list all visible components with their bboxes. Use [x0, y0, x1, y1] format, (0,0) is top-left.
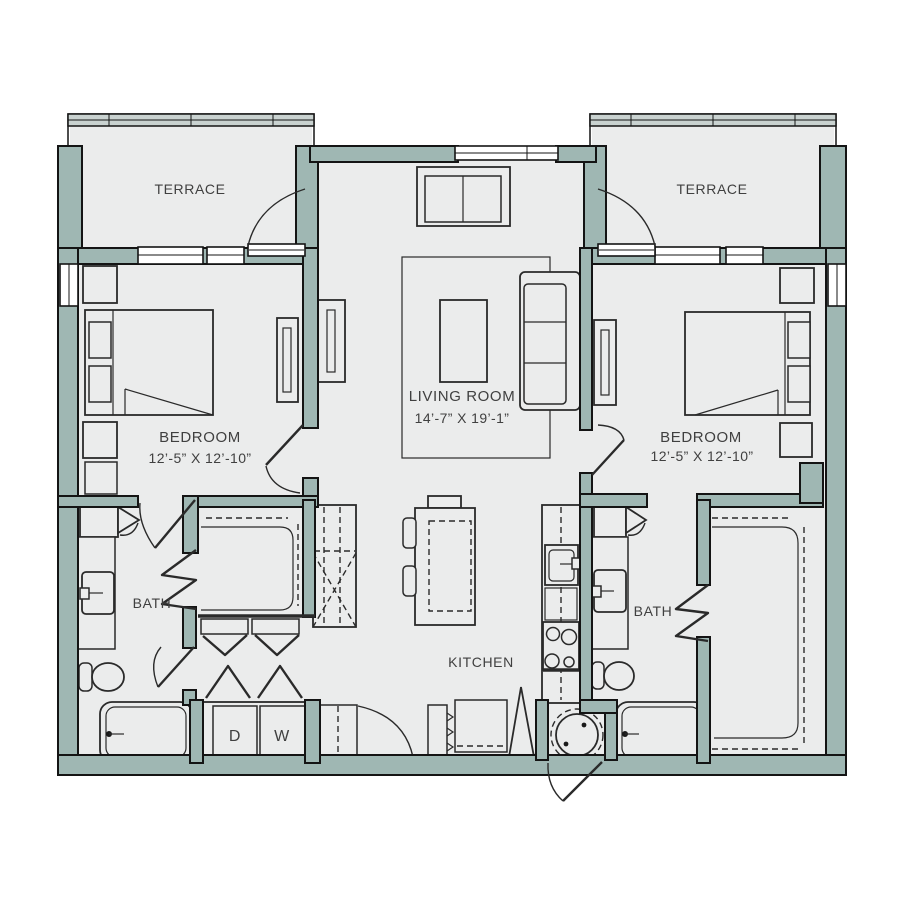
wall-bath-closet-left-mid	[183, 607, 196, 648]
dresser	[277, 318, 298, 402]
floor-plan-drawing: TERRACE TERRACE BEDROOM 12’-5” X 12’-10”…	[0, 0, 900, 900]
wall-kitchen-east	[580, 473, 592, 707]
stool	[403, 566, 416, 596]
washer-label: W	[274, 728, 290, 745]
burner	[562, 630, 577, 645]
console-table	[318, 300, 345, 382]
burner	[545, 654, 559, 668]
wall-step-right	[800, 463, 823, 503]
wall-east-exterior	[826, 248, 846, 775]
wall-bath-left-north	[58, 496, 138, 507]
dryer-label: D	[229, 728, 241, 745]
living-room-label: LIVING ROOM	[409, 388, 516, 405]
burner	[564, 657, 574, 667]
bench	[85, 462, 117, 494]
pillow	[89, 366, 111, 402]
wall-bath-closet-right-upper	[697, 500, 710, 585]
closet-bifold-panel	[252, 619, 299, 634]
bath-right-label: BATH	[634, 603, 673, 619]
shower	[80, 505, 118, 537]
mechanical-chase	[313, 505, 356, 627]
wall-bath-closet-right-lower	[697, 637, 710, 763]
counter	[542, 505, 580, 703]
wall-vestibule-north	[580, 700, 617, 713]
bedroom-right-dims: 12’-5” X 12’-10”	[651, 448, 754, 464]
living-room-dims: 14’-7” X 19’-1”	[415, 410, 510, 426]
wall-laundry-west	[190, 700, 203, 763]
entry-bench	[455, 700, 507, 752]
table-dot	[564, 742, 569, 747]
wall-laundry-east	[305, 700, 320, 763]
pillow	[89, 322, 111, 358]
kitchen-island	[415, 508, 475, 625]
bath-left-label: BATH	[133, 595, 172, 611]
wall-living-north-east	[556, 146, 596, 162]
wall-living-west	[303, 248, 318, 428]
bedroom-left-dims: 12’-5” X 12’-10”	[149, 450, 252, 466]
wall-living-east	[580, 248, 592, 430]
bathtub	[616, 702, 706, 762]
bathtub	[100, 702, 192, 762]
toilet-bowl	[604, 662, 634, 690]
pillow	[788, 366, 810, 402]
sofa-cushions	[524, 284, 566, 404]
coffee-table	[440, 300, 487, 382]
wall-vestibule-west	[536, 700, 548, 760]
nightstand	[83, 266, 117, 303]
wall-terrace-left-west	[58, 146, 82, 258]
laundry-closet	[200, 702, 312, 763]
closet-bifold-panel	[201, 619, 248, 634]
nightstand	[780, 268, 814, 303]
wall-closet-left-north	[198, 496, 318, 507]
stool	[403, 518, 416, 548]
entry-table	[556, 714, 598, 756]
pillow	[788, 322, 810, 358]
floor-plan-page: TERRACE TERRACE BEDROOM 12’-5” X 12’-10”…	[0, 0, 900, 900]
table-dot	[582, 723, 587, 728]
bedroom-left-label: BEDROOM	[159, 429, 241, 446]
wall-west-exterior	[58, 248, 78, 775]
kitchen-label: KITCHEN	[448, 654, 514, 670]
faucet-icon	[592, 586, 601, 597]
toilet-tank	[592, 662, 604, 689]
island-shelf	[428, 496, 461, 508]
wall-living-north	[310, 146, 458, 162]
toilet-tank	[79, 663, 92, 691]
wall-bath-right-north-west	[580, 494, 647, 507]
nightstand	[83, 422, 117, 458]
toilet-bowl	[92, 663, 124, 691]
wall-south-exterior	[58, 755, 846, 775]
wall-terrace-right-east	[820, 146, 846, 258]
terrace-right-label: TERRACE	[676, 181, 747, 197]
bedroom-right-label: BEDROOM	[660, 429, 742, 446]
dresser	[594, 320, 616, 405]
faucet-icon	[80, 588, 89, 599]
chase-box	[313, 505, 356, 627]
terrace-left-label: TERRACE	[154, 181, 225, 197]
burner	[547, 628, 560, 641]
nightstand	[780, 423, 812, 457]
wall-closet-left-east	[303, 500, 315, 617]
shower	[594, 505, 626, 537]
